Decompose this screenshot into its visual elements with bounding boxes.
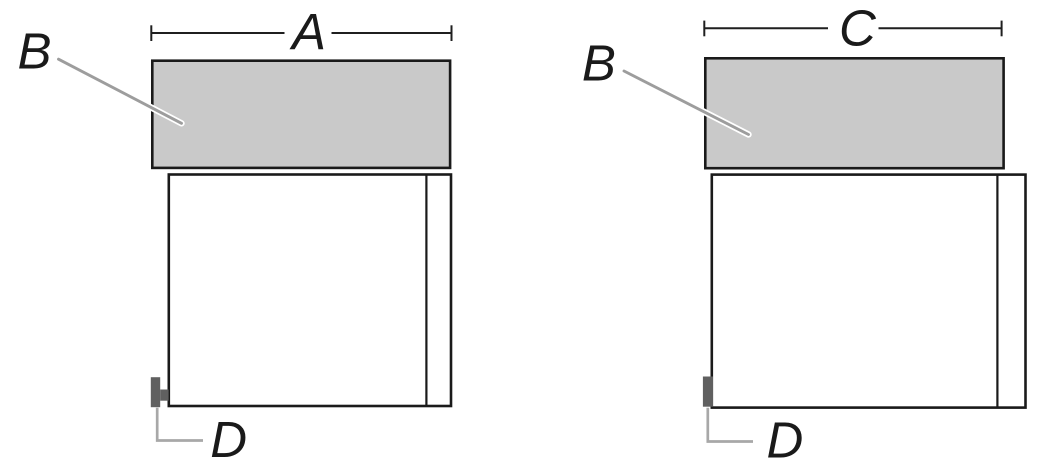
svg-text:C: C [839,0,877,57]
svg-text:A: A [289,3,326,60]
svg-text:B: B [18,23,52,80]
svg-text:D: D [210,411,247,468]
svg-text:B: B [582,35,616,92]
svg-text:D: D [767,411,804,468]
